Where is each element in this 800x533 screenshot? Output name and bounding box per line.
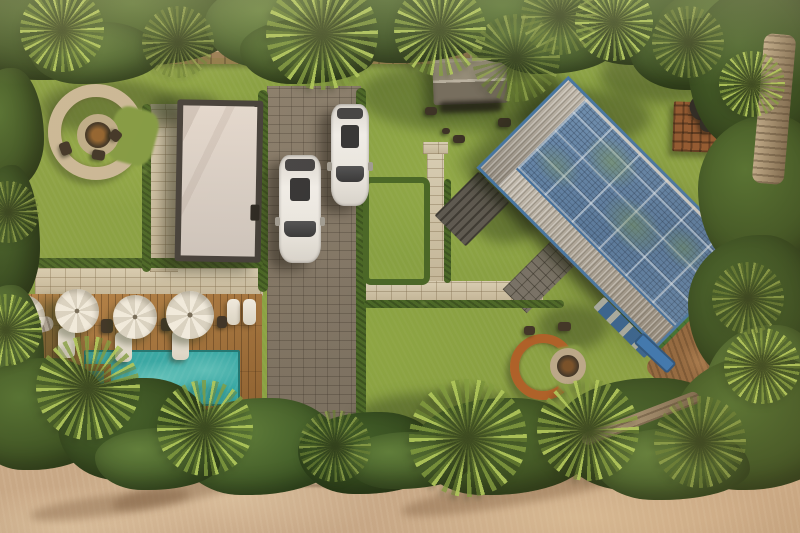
fire-chair [524,326,535,335]
hedge-south-lawn [364,300,564,308]
parasol [55,289,99,333]
palm-tree [36,336,140,440]
sun-lounger [243,299,256,325]
sun-lounger [227,299,240,325]
garden-object [442,128,450,134]
gazebo-interior-shadow [440,100,503,113]
palm-tree [142,6,214,78]
palm-tree [712,262,784,334]
suv-rear-window [285,159,314,171]
parasol [166,291,214,339]
garage-roof [175,99,264,262]
palm-tree [157,380,253,476]
palm-tree [654,396,746,488]
suv-mirror [275,217,280,226]
fire-chair [91,149,106,161]
palm-tree [537,379,639,481]
suv-2 [279,155,321,263]
suv-mirror [327,162,332,171]
suv-mirror [320,217,325,226]
suv-windshield [284,221,315,237]
palm-tree [652,6,724,78]
garden-object [453,135,465,143]
deck-chair [217,316,227,328]
palm-tree [299,410,371,482]
aerial-photo [0,0,800,533]
stone-path-landing [423,142,448,154]
fire-pit-lounge-north [48,84,158,194]
garage-roof-surface [181,105,258,256]
suv-rear-window [337,108,364,119]
suv-windshield [336,166,364,181]
palm-tree [719,51,785,117]
ac-unit [250,205,259,221]
parasol [113,295,157,339]
suv-1 [331,104,369,206]
deck-chair [101,319,113,333]
garden-object [498,118,511,127]
palm-tree [409,379,527,497]
suv-sunroof [341,125,359,147]
suv-sunroof [290,178,310,202]
fire-chair [558,322,571,331]
suv-mirror [368,162,373,171]
hedge-lawn-ring [363,177,430,285]
garden-object [425,107,437,115]
palm-tree [724,328,800,404]
